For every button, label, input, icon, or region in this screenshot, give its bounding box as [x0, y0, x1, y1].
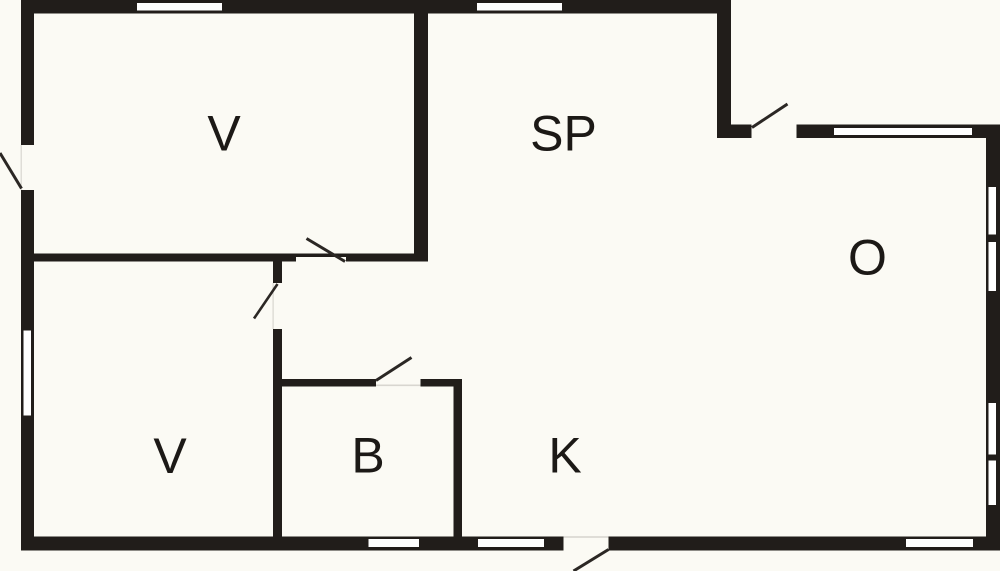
svg-text:O: O	[848, 230, 887, 286]
svg-text:K: K	[548, 427, 581, 483]
svg-text:V: V	[153, 428, 187, 484]
svg-text:V: V	[207, 106, 241, 162]
svg-text:B: B	[351, 427, 384, 483]
svg-text:SP: SP	[530, 106, 597, 162]
